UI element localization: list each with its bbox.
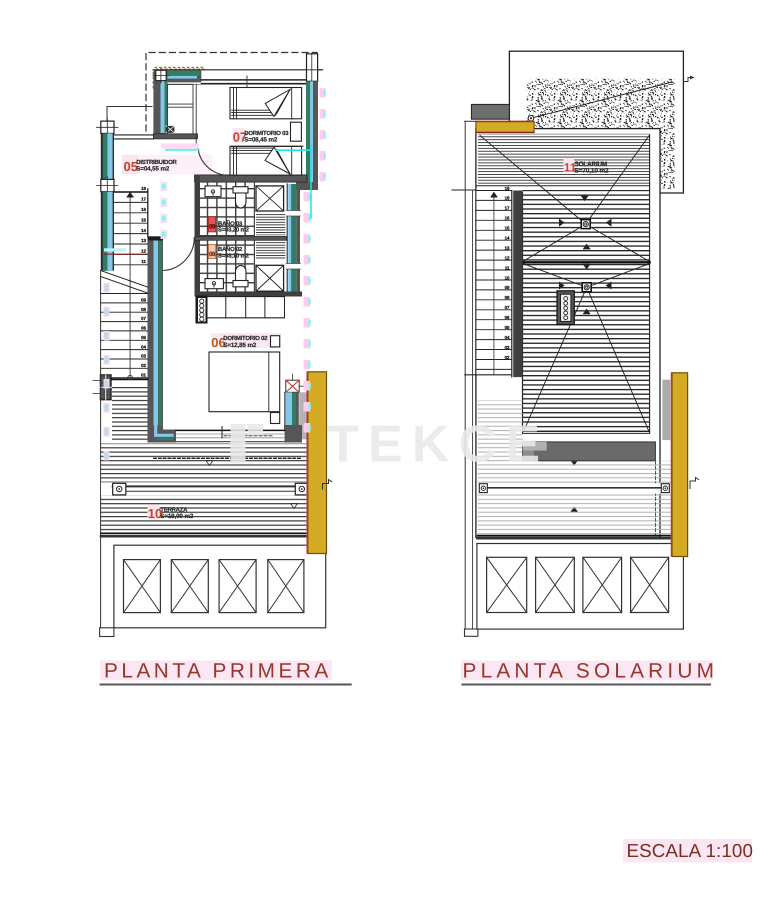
svg-text:03: 03	[505, 345, 510, 350]
svg-text:06: 06	[141, 326, 146, 331]
svg-text:09: 09	[141, 298, 146, 303]
svg-text:05: 05	[505, 325, 510, 330]
svg-text:13: 13	[141, 238, 146, 243]
svg-text:09: 09	[209, 223, 216, 230]
svg-text:12: 12	[141, 249, 146, 254]
svg-text:10: 10	[505, 275, 510, 280]
svg-text:15: 15	[141, 217, 146, 222]
svg-text:03: 03	[141, 354, 146, 359]
svg-text:13: 13	[505, 245, 510, 250]
svg-text:18: 18	[141, 186, 146, 191]
svg-text:16: 16	[505, 216, 510, 221]
svg-text:05: 05	[141, 335, 146, 340]
svg-text:18: 18	[505, 196, 510, 201]
svg-text:BAÑO 03: BAÑO 03	[218, 219, 243, 227]
svg-text:12: 12	[505, 255, 510, 260]
svg-text:19: 19	[505, 186, 510, 191]
svg-text:S=03,20 m2: S=03,20 m2	[218, 227, 250, 234]
svg-text:S=08,45 m2: S=08,45 m2	[244, 137, 278, 144]
svg-text:14: 14	[141, 228, 146, 233]
svg-text:15: 15	[505, 226, 510, 231]
svg-text:16: 16	[141, 207, 146, 212]
svg-text:04: 04	[141, 344, 146, 349]
svg-text:02: 02	[141, 363, 146, 368]
svg-text:BAÑO 02: BAÑO 02	[218, 245, 243, 253]
svg-text:PLANTA PRIMERA: PLANTA PRIMERA	[104, 660, 332, 683]
svg-text:17: 17	[141, 197, 146, 202]
svg-text:11: 11	[505, 265, 510, 270]
svg-text:S=70,10 m2: S=70,10 m2	[575, 168, 610, 175]
svg-text:ESCALA 1:100: ESCALA 1:100	[627, 840, 754, 861]
svg-text:08: 08	[141, 307, 146, 312]
svg-text:07: 07	[505, 305, 510, 310]
svg-text:09: 09	[505, 285, 510, 290]
svg-text:14: 14	[505, 236, 510, 241]
svg-text:S=03,10 m2: S=03,10 m2	[218, 252, 250, 259]
svg-text:07: 07	[141, 316, 146, 321]
svg-text:11: 11	[141, 259, 146, 264]
svg-text:PLANTA SOLARIUM: PLANTA SOLARIUM	[463, 660, 719, 683]
svg-text:08: 08	[209, 251, 216, 258]
svg-text:TEKCE: TEKCE	[327, 416, 549, 474]
svg-text:S=19,00 m2: S=19,00 m2	[160, 513, 194, 520]
svg-text:04: 04	[505, 335, 510, 340]
svg-text:01: 01	[141, 372, 146, 377]
svg-text:S=04,55 m2: S=04,55 m2	[136, 166, 170, 173]
svg-text:06: 06	[505, 315, 510, 320]
svg-text:08: 08	[505, 295, 510, 300]
svg-text:02: 02	[505, 355, 510, 360]
svg-text:17: 17	[505, 206, 510, 211]
svg-text:S=12,85 m2: S=12,85 m2	[223, 342, 257, 349]
